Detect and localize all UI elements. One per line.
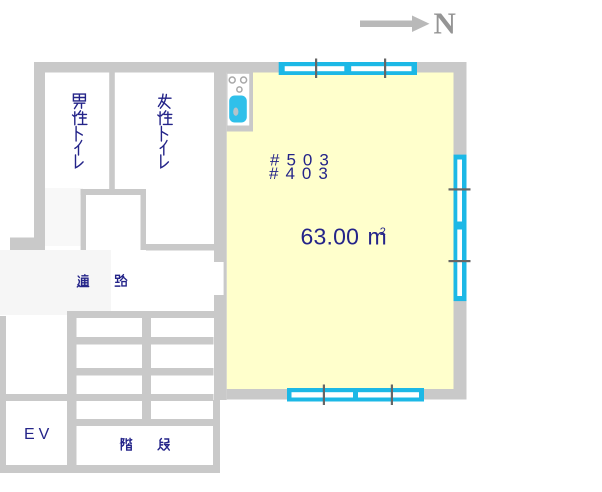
svg-text:63.00: 63.00 (301, 224, 360, 250)
svg-text:#403: #403 (269, 164, 335, 183)
svg-text:EV: EV (24, 426, 53, 443)
svg-text:2: 2 (380, 226, 386, 238)
svg-text:N: N (434, 6, 456, 41)
